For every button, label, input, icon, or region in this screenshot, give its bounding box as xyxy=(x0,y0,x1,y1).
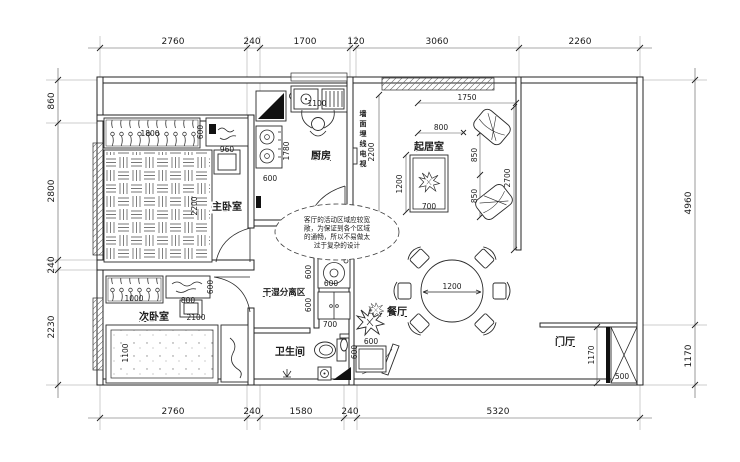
room-master-bedroom: 1800 600 960 2200 主卧室 xyxy=(104,118,248,262)
sofa-pillow-1 xyxy=(471,107,512,147)
dining-chair-ne xyxy=(473,245,498,270)
washbasin xyxy=(340,334,349,351)
person-figure xyxy=(302,110,335,136)
dining-chair-sw xyxy=(406,312,431,337)
dining-table xyxy=(421,260,483,322)
wall-kitchen-living xyxy=(347,77,353,225)
note-line-2: 敞，为保证到各个区域 xyxy=(304,224,370,233)
dim-kitchen-counter: 1100 xyxy=(307,99,326,108)
tv-set xyxy=(353,148,357,164)
label-foyer: 门厅 xyxy=(555,335,575,348)
dim-master-wardrobe-depth: 600 xyxy=(196,125,205,140)
dim-right-1: 4960 xyxy=(684,191,694,214)
window-master xyxy=(93,143,103,255)
wall-outer-right xyxy=(637,77,643,385)
dressing-table-master xyxy=(206,118,248,146)
wall-second-right xyxy=(248,308,254,385)
dim-bottom-2: 240 xyxy=(243,407,260,417)
label-living-room: 起居室 xyxy=(413,140,444,153)
window-second-bedroom xyxy=(93,298,103,370)
dim-wet-600c: 600 xyxy=(304,298,313,313)
nightstand-second xyxy=(221,325,248,382)
dim-tv-wall: 2200 xyxy=(367,142,376,161)
note-line-3: 的通畅，所以不易做太 xyxy=(304,232,370,241)
dim-foyer-depth: 1170 xyxy=(587,345,596,364)
dim-second-bed-width: 1100 xyxy=(121,343,130,362)
label-tv-wall: 墙面埋线电视 xyxy=(360,109,367,168)
dim-kitchen-depth: 1780 xyxy=(282,141,291,160)
dim-right-2: 1170 xyxy=(684,344,694,367)
dim-bottom-1: 2760 xyxy=(162,407,185,417)
window-kitchen xyxy=(291,73,347,81)
dim-second-bed-length: 2100 xyxy=(186,313,205,322)
dim-living-rug-700: 700 xyxy=(422,202,437,211)
dim-bath-600: 600 xyxy=(350,345,359,360)
label-master-bedroom: 主卧室 xyxy=(212,200,242,213)
dim-living-850b: 850 xyxy=(470,189,479,204)
dim-master-bed: 2200 xyxy=(190,196,199,215)
dining-chair-se xyxy=(473,312,498,337)
note-line-1: 客厅的活动区域应较宽 xyxy=(304,215,370,224)
label-bathroom: 卫生间 xyxy=(275,345,305,358)
floor-plan-canvas: 2760 240 1700 120 3060 2260 2760 240 158… xyxy=(0,0,740,462)
room-foyer: 1170 500 门厅 xyxy=(555,324,637,386)
dim-dining-table: 1200 xyxy=(442,282,461,291)
room-second-bedroom: 1000 800 600 2100 1100 次卧室 xyxy=(106,276,248,383)
fridge xyxy=(256,91,297,121)
dim-master-dresser: 960 xyxy=(220,145,235,154)
note-line-4: 过于复杂的设计 xyxy=(314,241,361,250)
dining-chair-w xyxy=(394,282,411,300)
dim-living-2700: 2700 xyxy=(503,168,512,187)
dim-second-wardrobe: 1000 xyxy=(124,294,143,303)
shower-symbol xyxy=(283,369,291,377)
dim-top-4: 120 xyxy=(347,37,364,47)
dim-foyer-cabinet: 500 xyxy=(615,372,630,381)
wall-living-right xyxy=(516,77,521,250)
dim-wet-700: 700 xyxy=(323,320,338,329)
entry-bench xyxy=(356,346,386,372)
dim-top-6: 2260 xyxy=(569,37,592,47)
door-second xyxy=(214,277,250,312)
label-second-bedroom: 次卧室 xyxy=(139,310,169,323)
room-kitchen: 1100 1780 600 厨房 xyxy=(256,86,347,208)
room-bathroom: 600 卫生间 xyxy=(275,334,359,380)
dim-kitchen-stove: 600 xyxy=(263,174,278,183)
door-master xyxy=(216,228,250,262)
label-dry-wet-zone: 干湿分离区 xyxy=(263,287,306,298)
floor-drain xyxy=(318,367,331,380)
wet-cabinet xyxy=(318,292,350,319)
dim-second-dresser-depth: 600 xyxy=(206,280,215,295)
dim-living-1750: 1750 xyxy=(457,93,476,102)
dim-top-5: 3060 xyxy=(426,37,449,47)
dim-left-4: 2230 xyxy=(47,315,57,338)
dressing-table-second xyxy=(166,276,210,298)
label-dining-room: 餐厅 xyxy=(386,305,407,318)
stove xyxy=(256,126,282,168)
dim-bottom-3: 1580 xyxy=(290,407,313,417)
dim-bottom-5: 5320 xyxy=(487,407,510,417)
wall-bath-top xyxy=(254,328,310,333)
label-kitchen: 厨房 xyxy=(311,149,331,162)
dim-left-1: 860 xyxy=(47,92,57,109)
dining-chair-e xyxy=(493,282,510,300)
dim-wet-600b: 600 xyxy=(324,279,339,288)
dim-living-800: 800 xyxy=(434,123,449,132)
shower-corner xyxy=(333,367,351,380)
floor-plan-page: 2760 240 1700 120 3060 2260 2760 240 158… xyxy=(0,0,740,462)
dim-wet-600a: 600 xyxy=(304,265,313,280)
room-dry-wet: 600 600 600 700 干湿分离区 xyxy=(263,258,350,329)
dim-top-2: 240 xyxy=(243,37,260,47)
dining-chair-nw xyxy=(406,245,431,270)
room-living: 1750 800 850 850 2700 1200 700 起居室 xyxy=(395,93,519,253)
dim-bottom-4: 240 xyxy=(341,407,358,417)
shoe-cabinet-back xyxy=(606,327,610,383)
dim-dining-plant: 600 xyxy=(364,337,379,346)
dim-top-3: 1700 xyxy=(294,37,317,47)
wall-outer-top xyxy=(97,77,643,83)
dim-living-rug-1200: 1200 xyxy=(395,174,404,193)
dim-master-wardrobe: 1800 xyxy=(140,129,159,138)
dim-left-2: 2800 xyxy=(47,179,57,202)
room-dining: 1200 餐厅 600 xyxy=(356,245,510,372)
wall-foyer-top xyxy=(540,323,637,327)
window-living xyxy=(382,78,494,90)
note-bubble: 客厅的活动区域应较宽 敞，为保证到各个区域 的通畅，所以不易做太 过于复杂的设计 xyxy=(275,204,399,260)
dim-living-850a: 850 xyxy=(470,148,479,163)
dim-left-3: 240 xyxy=(47,256,57,273)
dim-second-dresser: 800 xyxy=(181,296,196,305)
gas-pipe xyxy=(256,196,261,208)
wall-master-kitchen xyxy=(248,115,254,228)
dim-top-1: 2760 xyxy=(162,37,185,47)
